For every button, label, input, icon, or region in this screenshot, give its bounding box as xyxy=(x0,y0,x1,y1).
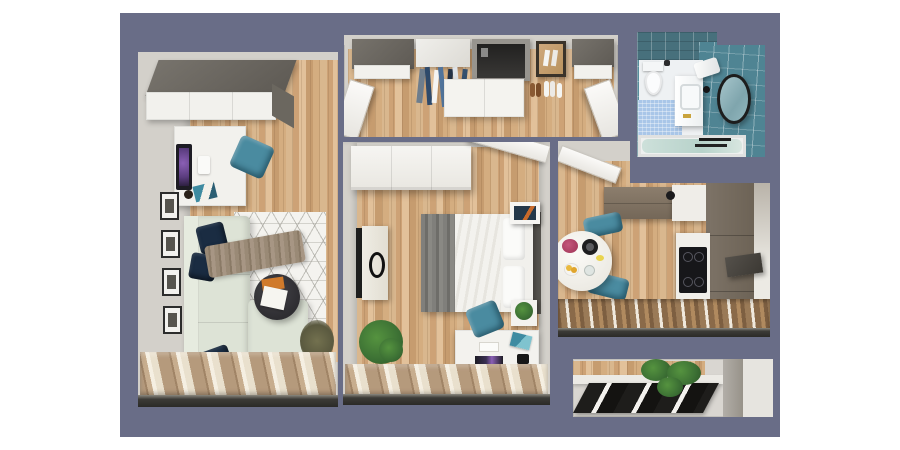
bed-frame-edge xyxy=(533,212,541,314)
hallway-wardrobe-right-top xyxy=(572,39,614,67)
entrance-door xyxy=(477,44,525,78)
kitchen-counter-white xyxy=(672,185,706,221)
entrance-recess xyxy=(472,39,530,81)
hallway-cabinet-white xyxy=(416,39,470,67)
balcony xyxy=(573,359,773,417)
monitor-screen xyxy=(179,148,189,186)
bathroom xyxy=(637,32,765,157)
vanity-sink xyxy=(680,84,701,110)
hallway-shoes xyxy=(530,81,564,103)
hallway-mirror xyxy=(536,41,566,77)
desk-cup xyxy=(184,190,193,199)
living-room-top-wall xyxy=(138,52,338,60)
desk-keyboard xyxy=(198,156,210,174)
bed-duvet xyxy=(455,214,501,312)
coffee-table xyxy=(254,274,300,320)
bedroom-curtains xyxy=(345,364,548,396)
bedroom-window-sill xyxy=(343,394,550,405)
living-room-window-sill xyxy=(138,395,338,407)
gallery-frame-2 xyxy=(161,230,180,258)
floor-plan-render xyxy=(0,0,900,450)
bedroom-wall-art xyxy=(510,202,540,224)
hallway-wardrobe-left-front xyxy=(354,65,410,79)
kitchen-window-sill xyxy=(558,328,770,337)
bedroom-art-prints xyxy=(510,332,533,350)
living-room-curtains xyxy=(140,352,336,396)
table-fruit-plate xyxy=(564,263,579,276)
desk-monitor xyxy=(176,144,192,190)
bed-gray-throw xyxy=(421,214,455,312)
balcony-window-frames xyxy=(573,383,719,413)
bathroom-faucet xyxy=(703,86,710,93)
table-glass xyxy=(584,265,595,276)
nightstand-plant xyxy=(515,302,533,320)
toilet-tank xyxy=(643,62,663,71)
bathroom-vanity xyxy=(675,76,703,126)
mirror-glass xyxy=(539,44,563,74)
table-black-plate xyxy=(582,239,598,255)
bedroom-desk-drawer xyxy=(479,342,499,352)
table-flower-bouquet xyxy=(562,239,578,253)
bedroom-bed xyxy=(421,214,539,312)
kitchen-wood-blinds xyxy=(558,299,770,330)
bedroom-plant-leaf xyxy=(379,338,403,362)
hallway xyxy=(344,35,618,137)
towel-rack-bar-1 xyxy=(699,138,731,141)
gallery-frame-3 xyxy=(162,268,181,296)
living-room-wardrobe xyxy=(144,60,294,122)
hallway-sideboard xyxy=(444,79,524,117)
vanity-soap xyxy=(683,114,691,118)
bedroom xyxy=(343,142,550,405)
gallery-frame-1 xyxy=(160,192,179,220)
kitchen-faucet xyxy=(666,191,675,200)
bed-mattress xyxy=(421,214,533,312)
balcony-right-wall xyxy=(743,359,773,417)
wardrobe-front-panel xyxy=(146,92,276,120)
coffee-table-magazine xyxy=(260,286,288,311)
bedroom-dresser xyxy=(362,226,388,300)
balcony-pillar xyxy=(723,359,743,417)
hallway-wardrobe-right-front xyxy=(574,65,612,79)
kitchen-induction-cooktop xyxy=(679,247,707,293)
wardrobe-side-panel xyxy=(272,84,294,129)
dresser-handle xyxy=(369,252,385,278)
balcony-plant-3 xyxy=(657,377,683,397)
bed-pillow-top xyxy=(503,218,525,260)
bathroom-round-mirror xyxy=(717,74,751,124)
towel-rack-bar-2 xyxy=(695,144,727,147)
entrance-door-handle xyxy=(481,48,488,57)
gallery-frame-4 xyxy=(163,306,182,334)
toilet-flush-button xyxy=(664,60,670,66)
bedroom-camera xyxy=(517,354,529,364)
table-lemon xyxy=(596,255,604,261)
bedroom-wardrobe xyxy=(351,146,471,190)
living-room xyxy=(138,52,338,407)
bathtub-water xyxy=(642,139,742,153)
